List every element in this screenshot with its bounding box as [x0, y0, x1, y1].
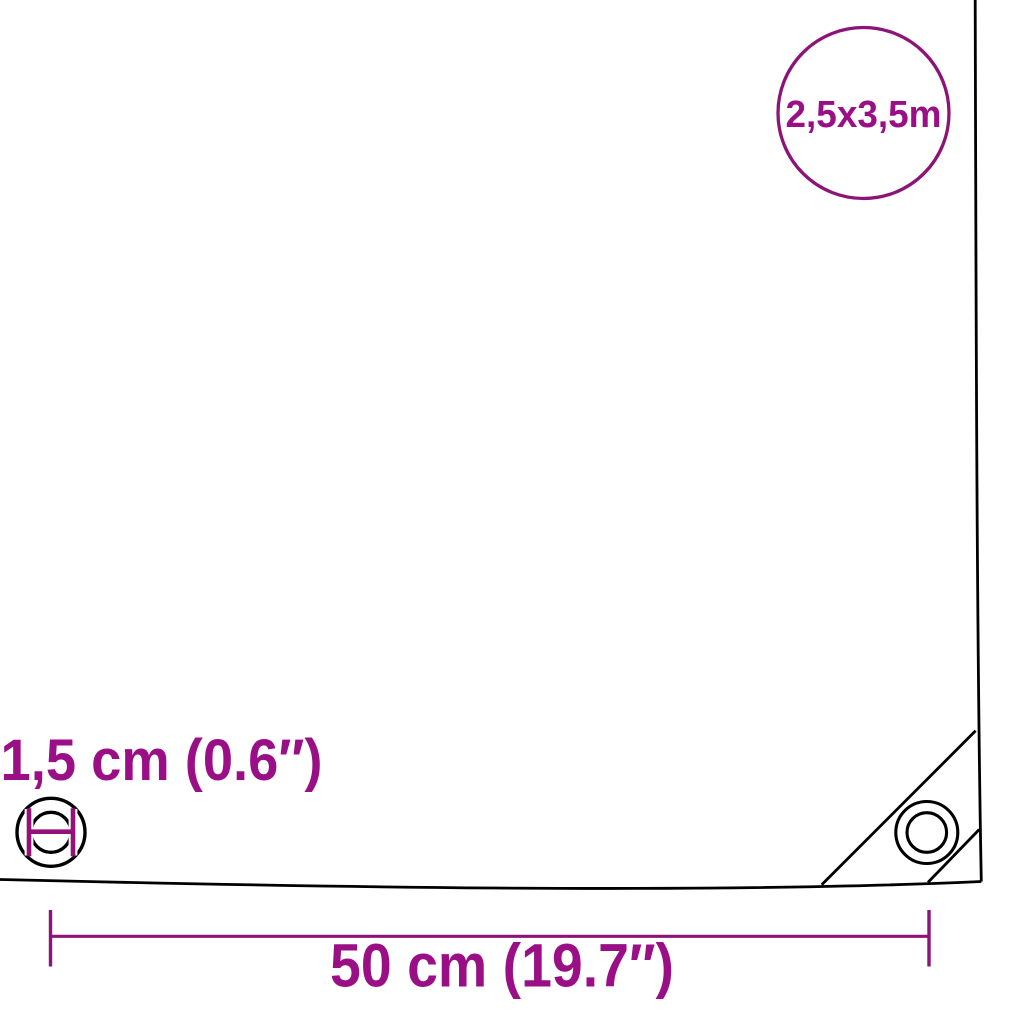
svg-text:50 cm (19.7″): 50 cm (19.7″)	[330, 932, 674, 1000]
svg-text:2,5x3,5m: 2,5x3,5m	[786, 94, 942, 136]
svg-text:1,5 cm (0.6″): 1,5 cm (0.6″)	[1, 728, 323, 793]
